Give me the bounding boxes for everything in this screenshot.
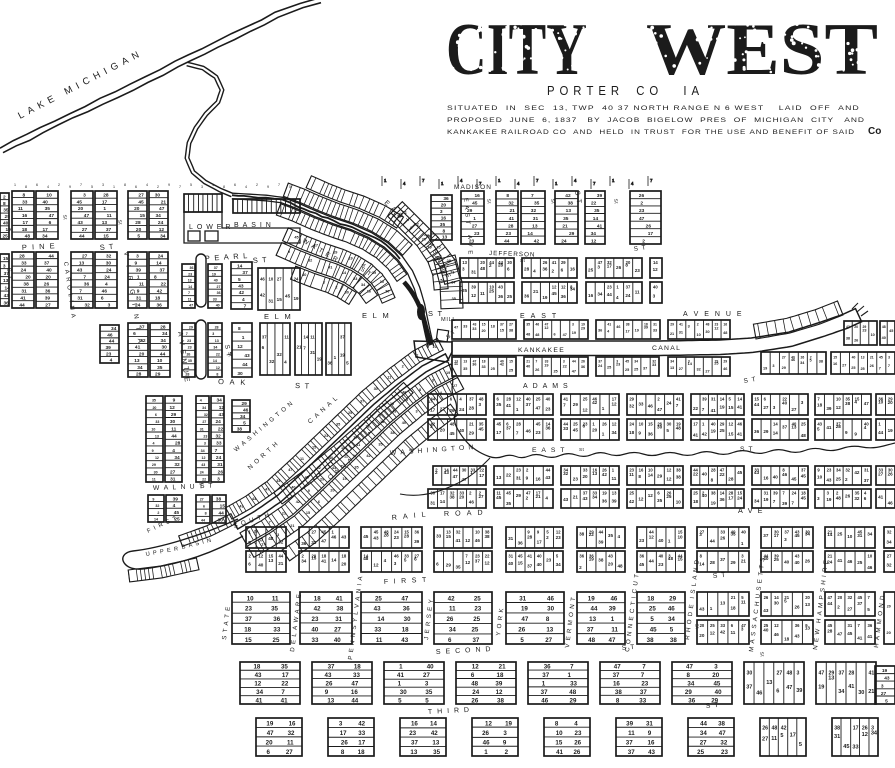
svg-text:9: 9 [503, 740, 507, 747]
svg-text:30: 30 [774, 601, 780, 606]
svg-text:23: 23 [715, 323, 719, 327]
svg-text:25: 25 [857, 560, 863, 565]
svg-text:47: 47 [719, 730, 726, 737]
svg-text:23: 23 [474, 231, 480, 237]
svg-text:41: 41 [737, 404, 743, 409]
svg-text:24: 24 [216, 455, 222, 461]
svg-text:37: 37 [643, 366, 647, 370]
svg-text:28: 28 [527, 535, 533, 540]
svg-text:21: 21 [282, 511, 286, 515]
svg-text:17: 17 [358, 740, 365, 747]
svg-text:38: 38 [626, 323, 630, 327]
svg-text:26: 26 [341, 740, 348, 747]
svg-text:36: 36 [45, 289, 51, 295]
svg-text:15: 15 [754, 396, 759, 401]
svg-text:31: 31 [864, 468, 869, 473]
svg-text:41: 41 [20, 296, 26, 302]
svg-text:36: 36 [301, 541, 307, 546]
svg-text:21: 21 [161, 199, 167, 205]
svg-text:45: 45 [552, 291, 558, 296]
svg-text:12: 12 [472, 664, 479, 671]
svg-text:45: 45 [879, 356, 883, 360]
svg-text:27: 27 [138, 192, 144, 198]
svg-text:42: 42 [260, 292, 266, 297]
svg-text:8: 8 [506, 193, 509, 199]
svg-text:27: 27 [777, 671, 783, 677]
svg-text:24: 24 [472, 689, 479, 696]
svg-text:43: 43 [77, 220, 83, 226]
svg-text:12: 12 [649, 534, 655, 539]
svg-text:42: 42 [565, 193, 571, 199]
svg-text:29: 29 [569, 231, 575, 237]
svg-text:25: 25 [693, 491, 698, 496]
svg-text:17: 17 [340, 730, 347, 737]
svg-text:26: 26 [581, 360, 585, 364]
svg-text:20: 20 [712, 672, 719, 679]
svg-text:18: 18 [801, 491, 806, 496]
svg-text:26: 26 [543, 260, 548, 265]
svg-text:34: 34 [111, 326, 117, 332]
svg-text:28: 28 [103, 192, 109, 198]
svg-text:26: 26 [602, 468, 607, 473]
svg-text:31: 31 [834, 734, 840, 740]
svg-text:36: 36 [414, 529, 419, 534]
svg-text:41: 41 [878, 495, 884, 500]
svg-text:44: 44 [79, 234, 85, 240]
svg-text:43: 43 [255, 672, 262, 679]
svg-text:27: 27 [762, 736, 768, 742]
svg-text:31: 31 [519, 595, 526, 602]
svg-text:2: 2 [157, 185, 159, 189]
svg-text:28: 28 [404, 534, 410, 539]
svg-text:23: 23 [450, 270, 454, 274]
svg-text:42: 42 [296, 500, 300, 504]
svg-text:1: 1 [741, 541, 744, 546]
svg-text:29: 29 [715, 360, 719, 364]
svg-text:34: 34 [156, 213, 162, 219]
svg-text:9: 9 [173, 398, 176, 404]
svg-text:45: 45 [843, 744, 849, 750]
svg-text:B A S I N: B A S I N [234, 222, 272, 229]
svg-text:29: 29 [320, 478, 324, 482]
svg-text:35: 35 [534, 201, 540, 207]
svg-text:22: 22 [563, 365, 567, 369]
svg-text:35: 35 [271, 606, 278, 613]
svg-text:39: 39 [702, 396, 707, 401]
svg-text:25: 25 [507, 294, 513, 299]
svg-text:37: 37 [472, 637, 479, 644]
svg-text:1: 1 [103, 206, 106, 212]
svg-text:17: 17 [536, 491, 541, 496]
svg-text:13: 13 [805, 602, 811, 607]
svg-text:45: 45 [858, 595, 863, 600]
svg-text:1: 1 [242, 335, 245, 341]
svg-text:15: 15 [648, 421, 653, 426]
svg-text:2: 2 [526, 496, 529, 501]
svg-text:32: 32 [848, 595, 853, 600]
svg-text:23: 23 [254, 530, 258, 534]
svg-text:39: 39 [626, 721, 633, 728]
svg-text:31: 31 [646, 721, 653, 728]
svg-text:7: 7 [447, 264, 449, 268]
svg-text:12: 12 [582, 408, 588, 413]
svg-text:37: 37 [242, 270, 248, 276]
svg-text:13: 13 [670, 366, 674, 370]
svg-text:14: 14 [720, 491, 725, 496]
svg-text:27: 27 [842, 364, 846, 368]
svg-text:47: 47 [614, 664, 621, 671]
svg-text:3: 3 [425, 681, 429, 688]
svg-text:1: 1 [14, 183, 16, 187]
svg-text:3: 3 [503, 730, 507, 737]
svg-text:6: 6 [864, 496, 867, 501]
svg-text:32: 32 [277, 352, 283, 357]
svg-text:46: 46 [756, 690, 762, 696]
svg-text:E A S T: E A S T [532, 447, 566, 454]
svg-text:48: 48 [588, 637, 595, 644]
svg-text:5: 5 [404, 558, 407, 563]
svg-text:13: 13 [327, 697, 334, 704]
svg-text:20: 20 [152, 406, 156, 410]
svg-text:38: 38 [676, 468, 681, 473]
svg-text:6: 6 [248, 561, 251, 566]
svg-text:41: 41 [867, 634, 873, 639]
svg-text:41: 41 [837, 558, 843, 563]
svg-text:47: 47 [545, 323, 549, 327]
svg-text:12: 12 [516, 396, 521, 401]
svg-text:45: 45 [472, 201, 478, 207]
svg-text:43: 43 [699, 607, 705, 612]
svg-text:26: 26 [218, 469, 224, 475]
svg-text:29: 29 [446, 562, 452, 567]
svg-text:29: 29 [516, 493, 522, 498]
svg-text:15: 15 [509, 360, 513, 364]
svg-text:26: 26 [667, 491, 672, 496]
svg-text:47: 47 [639, 216, 645, 222]
svg-text:1: 1 [473, 216, 476, 222]
svg-text:12: 12 [471, 293, 477, 298]
svg-text:8: 8 [638, 474, 641, 479]
svg-text:13: 13 [102, 220, 108, 226]
svg-text:8: 8 [223, 185, 225, 189]
svg-text:42: 42 [629, 499, 635, 504]
svg-text:29: 29 [730, 560, 736, 565]
svg-text:23: 23 [353, 277, 357, 281]
svg-text:A V E: A V E [738, 506, 764, 515]
svg-text:35: 35 [281, 664, 288, 671]
svg-text:17: 17 [728, 496, 734, 501]
svg-text:37: 37 [864, 478, 870, 483]
svg-text:32: 32 [652, 360, 656, 364]
svg-text:16: 16 [763, 475, 769, 480]
svg-text:14: 14 [364, 553, 369, 558]
svg-text:1: 1 [710, 606, 713, 611]
svg-text:11: 11 [480, 291, 485, 296]
svg-text:12: 12 [653, 267, 659, 272]
svg-text:23: 23 [546, 557, 552, 562]
svg-text:15: 15 [500, 329, 504, 333]
svg-text:10: 10 [151, 427, 155, 431]
svg-text:44: 44 [546, 468, 551, 473]
svg-text:19: 19 [353, 435, 357, 439]
svg-text:2: 2 [402, 365, 404, 369]
svg-text:5: 5 [190, 183, 192, 187]
svg-text:46: 46 [469, 500, 475, 505]
svg-text:44: 44 [878, 430, 884, 435]
svg-text:12: 12 [219, 405, 225, 411]
svg-text:43: 43 [341, 534, 347, 539]
svg-text:37: 37 [587, 627, 594, 634]
svg-text:33: 33 [358, 730, 365, 737]
svg-text:16: 16 [351, 689, 358, 696]
svg-text:8: 8 [124, 183, 126, 187]
svg-text:35: 35 [188, 359, 192, 363]
svg-text:38: 38 [845, 401, 851, 406]
svg-text:27: 27 [202, 420, 206, 424]
svg-text:15: 15 [103, 234, 109, 240]
svg-text:30: 30 [462, 468, 467, 473]
svg-text:32: 32 [697, 368, 701, 372]
svg-text:18: 18 [244, 627, 251, 634]
svg-text:7: 7 [702, 407, 705, 412]
svg-text:25: 25 [836, 477, 842, 482]
svg-text:37: 37 [857, 601, 863, 606]
svg-text:SITUATED IN SEC 13, TWP 40: SITUATED IN SEC 13, TWP 40 37 NORTH RANG… [447, 105, 860, 112]
svg-text:4: 4 [616, 295, 619, 300]
svg-text:21: 21 [278, 561, 284, 566]
svg-text:40: 40 [741, 529, 746, 534]
svg-text:46: 46 [394, 553, 399, 558]
svg-text:9: 9 [288, 250, 290, 254]
svg-text:47: 47 [563, 333, 567, 337]
svg-text:43: 43 [826, 477, 832, 482]
svg-text:25: 25 [583, 396, 588, 401]
svg-text:10: 10 [639, 421, 644, 426]
svg-text:47: 47 [159, 206, 165, 212]
svg-text:3: 3 [136, 254, 139, 260]
svg-text:38: 38 [834, 725, 840, 731]
svg-text:7: 7 [516, 431, 519, 436]
svg-text:43: 43 [219, 412, 225, 418]
svg-text:8: 8 [3, 201, 6, 207]
svg-text:25: 25 [588, 267, 594, 272]
svg-text:20: 20 [46, 275, 52, 281]
svg-text:4: 4 [574, 721, 578, 728]
svg-text:29: 29 [469, 431, 475, 436]
svg-text:19: 19 [266, 721, 273, 728]
svg-text:47: 47 [267, 730, 274, 737]
svg-text:40: 40 [546, 396, 551, 401]
svg-text:33: 33 [481, 365, 485, 369]
svg-text:34: 34 [202, 406, 206, 410]
svg-text:37: 37 [583, 491, 588, 496]
svg-text:24: 24 [625, 293, 631, 298]
svg-text:34: 34 [174, 455, 180, 461]
svg-text:40: 40 [329, 456, 333, 460]
svg-text:21: 21 [562, 223, 568, 229]
svg-text:9: 9 [152, 497, 154, 501]
svg-text:36: 36 [648, 432, 654, 437]
svg-text:45: 45 [650, 627, 657, 634]
svg-text:13: 13 [79, 261, 85, 267]
svg-text:47: 47 [572, 369, 576, 373]
svg-text:37: 37 [506, 426, 512, 431]
svg-text:43: 43 [473, 323, 477, 327]
svg-text:14: 14 [774, 595, 779, 600]
svg-text:43: 43 [77, 268, 83, 274]
svg-text:48: 48 [398, 214, 402, 218]
svg-text:25: 25 [625, 368, 629, 372]
svg-text:45: 45 [294, 235, 298, 239]
svg-text:32: 32 [508, 201, 514, 207]
svg-text:10: 10 [341, 446, 345, 450]
svg-text:34: 34 [160, 234, 166, 240]
svg-text:7: 7 [888, 364, 890, 368]
svg-text:11: 11 [272, 595, 279, 602]
svg-text:37: 37 [836, 421, 841, 426]
svg-text:40: 40 [402, 421, 406, 425]
svg-text:48: 48 [480, 266, 486, 271]
svg-text:7: 7 [83, 275, 86, 281]
svg-text:16: 16 [639, 468, 644, 473]
svg-text:43: 43 [4, 293, 10, 299]
svg-text:36: 36 [190, 266, 194, 270]
svg-text:40: 40 [782, 401, 788, 406]
svg-text:20: 20 [481, 329, 485, 333]
svg-text:3: 3 [572, 323, 574, 327]
svg-text:23: 23 [827, 468, 832, 473]
svg-text:32: 32 [204, 413, 208, 417]
svg-text:31: 31 [200, 427, 204, 431]
svg-text:4: 4 [618, 534, 621, 539]
svg-text:5: 5 [243, 420, 246, 426]
svg-text:40: 40 [500, 360, 504, 364]
svg-text:5: 5 [799, 742, 802, 748]
svg-text:23: 23 [506, 231, 512, 237]
svg-text:3: 3 [563, 360, 565, 364]
svg-text:30: 30 [345, 290, 349, 294]
svg-text:1: 1 [568, 672, 572, 679]
svg-text:27: 27 [700, 529, 705, 534]
svg-text:34: 34 [867, 532, 873, 537]
svg-text:41: 41 [563, 396, 568, 401]
svg-text:21: 21 [741, 559, 747, 564]
svg-text:29: 29 [242, 401, 248, 407]
svg-text:33: 33 [592, 491, 597, 496]
svg-text:11: 11 [287, 740, 294, 747]
svg-text:12: 12 [465, 538, 471, 543]
svg-text:15: 15 [342, 477, 346, 481]
svg-text:27: 27 [763, 405, 769, 410]
svg-text:4: 4 [146, 183, 148, 187]
svg-text:36: 36 [518, 540, 524, 545]
svg-text:6: 6 [267, 749, 271, 756]
svg-text:27: 27 [679, 367, 683, 371]
svg-text:37: 37 [360, 399, 364, 403]
svg-text:22: 22 [161, 282, 167, 288]
svg-text:37: 37 [328, 664, 335, 671]
svg-text:23: 23 [641, 681, 648, 688]
svg-text:12: 12 [611, 402, 617, 407]
svg-text:46: 46 [402, 390, 406, 394]
svg-text:Co: Co [868, 126, 881, 137]
svg-text:46: 46 [260, 277, 265, 282]
svg-text:45: 45 [828, 623, 833, 628]
svg-text:41: 41 [869, 671, 875, 677]
svg-text:38: 38 [579, 532, 585, 537]
svg-text:40: 40 [711, 421, 716, 426]
svg-text:47: 47 [454, 326, 458, 330]
svg-text:19: 19 [711, 428, 717, 433]
svg-text:45: 45 [77, 199, 83, 205]
svg-text:39: 39 [782, 501, 788, 506]
svg-text:37: 37 [626, 740, 633, 747]
svg-text:10: 10 [676, 500, 682, 505]
svg-text:38: 38 [485, 529, 490, 534]
svg-text:38: 38 [598, 557, 604, 562]
svg-text:5: 5 [91, 185, 93, 189]
svg-text:15: 15 [518, 561, 524, 566]
svg-text:11: 11 [376, 637, 383, 644]
svg-text:44: 44 [242, 362, 248, 368]
svg-text:32: 32 [886, 563, 892, 568]
svg-text:35: 35 [336, 422, 340, 426]
svg-text:11: 11 [310, 335, 315, 340]
svg-text:40: 40 [658, 538, 664, 543]
svg-text:28: 28 [728, 476, 734, 481]
svg-text:32: 32 [450, 491, 455, 496]
svg-text:26: 26 [646, 223, 652, 229]
svg-text:31: 31 [516, 475, 522, 480]
svg-text:38: 38 [615, 689, 622, 696]
svg-text:21: 21 [670, 332, 674, 336]
svg-text:2: 2 [157, 511, 159, 515]
svg-text:27: 27 [314, 243, 318, 247]
svg-text:33: 33 [472, 327, 476, 331]
svg-text:38: 38 [670, 637, 677, 644]
svg-text:41: 41 [527, 553, 532, 558]
svg-text:10: 10 [247, 595, 254, 602]
svg-text:41: 41 [556, 749, 563, 756]
svg-text:25: 25 [2, 234, 8, 240]
svg-text:23: 23 [575, 730, 582, 737]
svg-text:27: 27 [705, 369, 709, 373]
svg-text:44: 44 [563, 421, 568, 426]
svg-text:37: 37 [362, 263, 366, 267]
svg-text:22: 22 [506, 473, 512, 478]
svg-text:26: 26 [518, 627, 525, 634]
svg-text:7: 7 [79, 289, 82, 295]
svg-text:46: 46 [102, 289, 108, 295]
svg-text:30: 30 [507, 260, 512, 265]
svg-text:WEST: WEST [646, 9, 878, 91]
svg-text:15: 15 [220, 504, 226, 510]
svg-text:8: 8 [25, 185, 27, 189]
svg-text:2: 2 [810, 356, 812, 360]
svg-text:40: 40 [794, 560, 800, 565]
svg-text:43: 43 [201, 463, 205, 467]
svg-text:43: 43 [563, 497, 569, 502]
svg-text:13: 13 [446, 529, 451, 534]
svg-text:6: 6 [101, 296, 104, 302]
svg-text:26: 26 [764, 595, 769, 600]
svg-text:33: 33 [720, 623, 725, 628]
svg-text:24: 24 [561, 238, 567, 244]
svg-text:7: 7 [879, 366, 881, 370]
svg-text:41: 41 [328, 266, 332, 270]
svg-text:46: 46 [107, 332, 113, 338]
svg-text:13: 13 [532, 223, 538, 229]
